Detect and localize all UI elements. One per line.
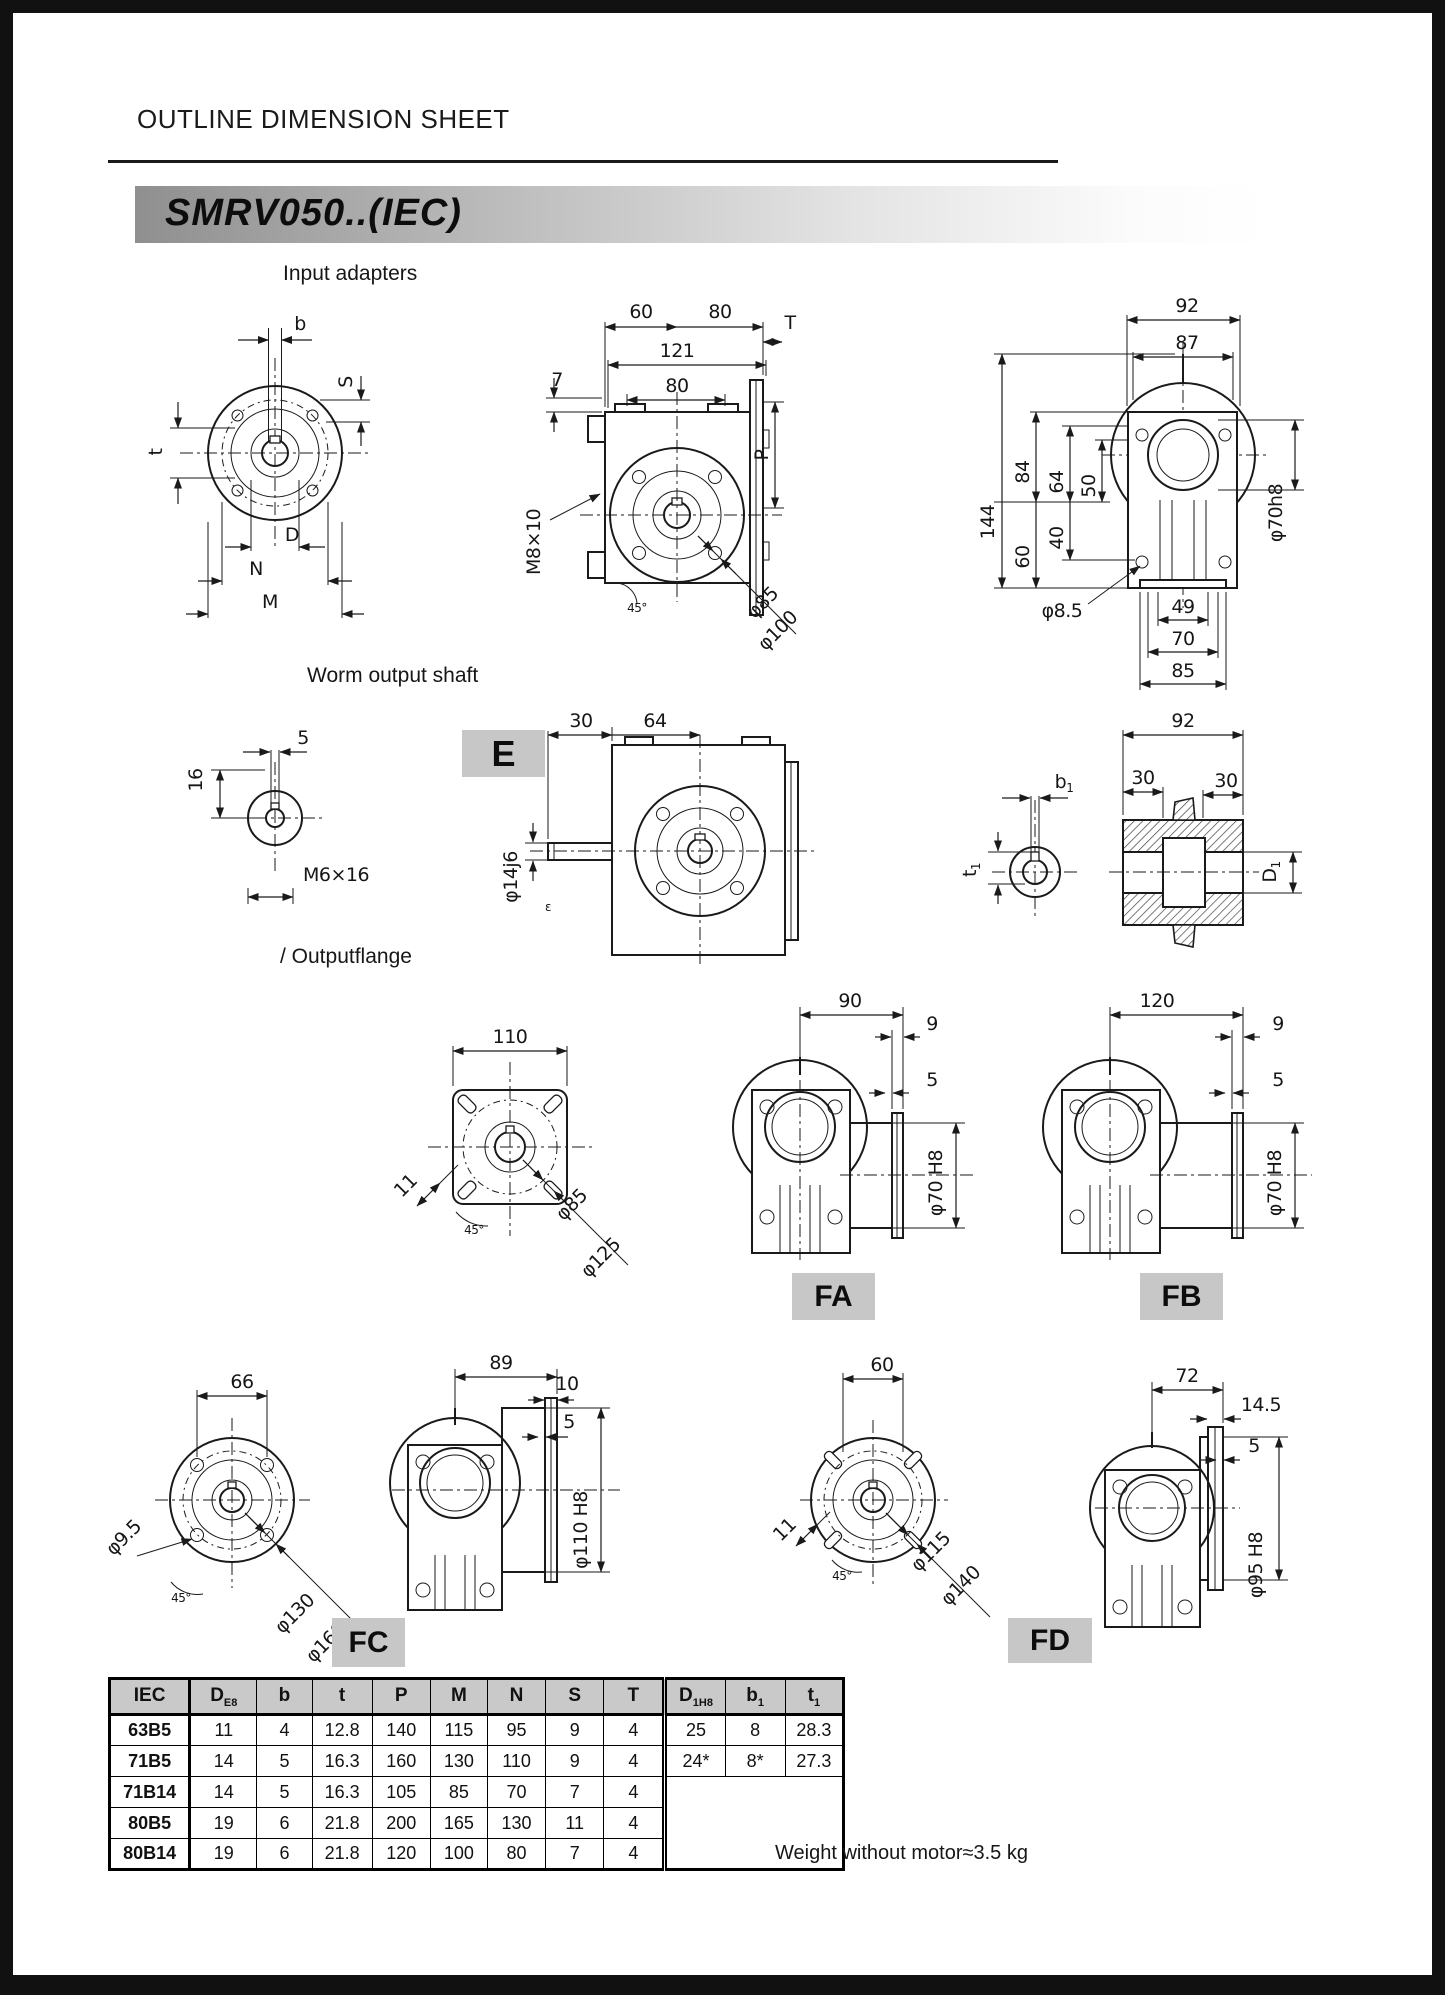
dim-label-50: 50 <box>1078 474 1100 497</box>
table-row: 71B14 14 5 16.3 105 85 70 7 4 <box>110 1777 844 1808</box>
dim-label-5: 5 <box>297 727 309 749</box>
cell: 80B14 <box>110 1839 190 1870</box>
cell: 9 <box>546 1715 604 1746</box>
dim-label-n: N <box>249 558 263 580</box>
dim-label-dia9-5: φ9.5 <box>102 1516 146 1560</box>
dim-label-eps: ε <box>545 900 551 914</box>
dim-label-dia70h8: φ70h8 <box>1265 484 1287 542</box>
cell: 7 <box>546 1839 604 1870</box>
page-frame-left <box>0 0 13 1995</box>
cell: 21.8 <box>312 1839 372 1870</box>
drawing-adapter-face: b S t D N M <box>140 250 390 625</box>
bore-face-geometry <box>988 796 1078 916</box>
cell: 4 <box>604 1839 665 1870</box>
drawing-hub-section: 92 30 30 D1 <box>1095 690 1325 945</box>
table-row: 63B5 11 4 12.8 140 115 95 9 4 25 8 28.3 <box>110 1715 844 1746</box>
cell: 120 <box>372 1839 430 1870</box>
fc-face-geometry <box>137 1390 353 1621</box>
dim-label-30: 30 <box>569 710 592 732</box>
dim-label-49: 49 <box>1171 596 1194 618</box>
cell: 25 <box>665 1715 725 1746</box>
dim-label-60: 60 <box>870 1354 893 1376</box>
dim-label-5: 5 <box>563 1411 575 1433</box>
dim-label-30r: 30 <box>1214 770 1237 792</box>
dim-label-11: 11 <box>390 1170 422 1202</box>
cell: 140 <box>372 1715 430 1746</box>
dim-label-10: 10 <box>555 1373 578 1395</box>
dim-label-90: 90 <box>838 990 861 1012</box>
cell: 9 <box>546 1746 604 1777</box>
cell: 6 <box>257 1808 312 1839</box>
cell: 4 <box>257 1715 312 1746</box>
title-underline <box>108 160 1058 163</box>
dim-label-87: 87 <box>1175 332 1198 354</box>
cell: 11 <box>546 1808 604 1839</box>
shaft-side-geometry <box>525 727 817 965</box>
drawing-adapter-back: 92 87 144 84 64 50 40 60 φ70h8 φ8.5 49 7… <box>950 270 1350 700</box>
cell: 7 <box>546 1777 604 1808</box>
dim-label-dia14j6: φ14j6 <box>500 851 522 903</box>
col-header-b: b <box>257 1679 312 1715</box>
dim-label-dia130: φ130 <box>270 1589 319 1638</box>
dim-label-16: 16 <box>185 768 207 791</box>
cell: 21.8 <box>312 1808 372 1839</box>
col-header-d-e8: DE8 <box>190 1679 257 1715</box>
page-frame-bottom <box>0 1975 1445 1995</box>
cell: 85 <box>430 1777 487 1808</box>
dim-label-dia110h8: φ110 H8 <box>570 1491 592 1569</box>
dim-label-80b: 80 <box>665 375 688 397</box>
dim-label-92: 92 <box>1175 295 1198 317</box>
dim-label-45deg: 45° <box>464 1223 484 1237</box>
cell: 27.3 <box>785 1746 843 1777</box>
dim-label-14-5: 14.5 <box>1241 1394 1281 1416</box>
col-header-t: t <box>312 1679 372 1715</box>
cell: 105 <box>372 1777 430 1808</box>
col-header-s: S <box>546 1679 604 1715</box>
col-header-p: P <box>372 1679 430 1715</box>
cell: 12.8 <box>312 1715 372 1746</box>
cell: 130 <box>430 1746 487 1777</box>
col-header-t2: T <box>604 1679 665 1715</box>
dim-label-m: M <box>262 591 278 613</box>
dim-label-92: 92 <box>1171 710 1194 732</box>
dimension-table: IEC DE8 b t P M N S T D1H8 b1 t1 63B5 11… <box>108 1677 845 1871</box>
cell: 200 <box>372 1808 430 1839</box>
cell: 4 <box>604 1808 665 1839</box>
model-banner: SMRV050..(IEC) <box>135 186 1265 243</box>
dim-label-144: 144 <box>977 504 999 539</box>
col-header-iec: IEC <box>110 1679 190 1715</box>
cell: 110 <box>487 1746 545 1777</box>
drawing-shaft-face: 5 16 M6×16 <box>175 700 405 915</box>
cell: 16.3 <box>312 1746 372 1777</box>
cell: 28.3 <box>785 1715 843 1746</box>
cell: 100 <box>430 1839 487 1870</box>
cell: 80 <box>487 1839 545 1870</box>
fa-geometry <box>733 1007 973 1260</box>
cell: 24* <box>665 1746 725 1777</box>
cell: 8 <box>725 1715 785 1746</box>
dim-label-45deg: 45° <box>171 1591 191 1605</box>
col-header-b1: b1 <box>725 1679 785 1715</box>
cell: 6 <box>257 1839 312 1870</box>
col-header-m: M <box>430 1679 487 1715</box>
hub-section-geometry <box>1109 730 1302 947</box>
dim-label-45deg: 45° <box>627 601 647 615</box>
badge-fb: FB <box>1140 1273 1223 1320</box>
cell: 70 <box>487 1777 545 1808</box>
cell: 130 <box>487 1808 545 1839</box>
dim-label-80: 80 <box>708 301 731 323</box>
dim-label-dia8-5: φ8.5 <box>1042 600 1083 622</box>
dim-label-d: D <box>285 524 299 546</box>
dim-label-64: 64 <box>1046 470 1068 494</box>
cell: 8* <box>725 1746 785 1777</box>
col-header-n: N <box>487 1679 545 1715</box>
dim-label-121: 121 <box>660 340 695 362</box>
cell: 19 <box>190 1839 257 1870</box>
dim-label-dia70h8: φ70 H8 <box>925 1150 947 1216</box>
page-title: OUTLINE DIMENSION SHEET <box>137 104 510 135</box>
dim-label-70: 70 <box>1171 628 1194 650</box>
cell: 4 <box>604 1746 665 1777</box>
drawing-fc: 89 10 5 φ110 H8 <box>380 1340 635 1670</box>
dim-label-72: 72 <box>1175 1365 1198 1387</box>
dim-label-t1: t1 <box>959 863 983 877</box>
dim-label-120: 120 <box>1140 990 1175 1012</box>
dim-label-30l: 30 <box>1131 767 1154 789</box>
dim-label-D1: D1 <box>1259 861 1283 882</box>
dim-label-9: 9 <box>1272 1013 1284 1035</box>
page-frame-top <box>0 0 1445 13</box>
cell: 11 <box>190 1715 257 1746</box>
cell: 63B5 <box>110 1715 190 1746</box>
cell: 80B5 <box>110 1808 190 1839</box>
cell: 160 <box>372 1746 430 1777</box>
outline-dimension-sheet-page: { "page": { "title": "OUTLINE DIMENSION … <box>0 0 1445 1995</box>
cell: 4 <box>604 1715 665 1746</box>
col-header-t1: t1 <box>785 1679 843 1715</box>
table-row: 71B5 14 5 16.3 160 130 110 9 4 24* 8* 27… <box>110 1746 844 1777</box>
drawing-fb: 120 9 5 φ70 H8 <box>1040 985 1325 1285</box>
fc-geometry <box>390 1369 620 1610</box>
col-header-d1h8: D1H8 <box>665 1679 725 1715</box>
dim-label-m8x10: M8×10 <box>523 509 545 575</box>
cell: 14 <box>190 1746 257 1777</box>
drawing-adapter-side: 60 80 T 121 80 7 M8×10 P φ85 φ100 45° <box>430 280 825 680</box>
cell: 14 <box>190 1777 257 1808</box>
cell: 16.3 <box>312 1777 372 1808</box>
cell: 71B14 <box>110 1777 190 1808</box>
flange110-geometry <box>417 1046 628 1265</box>
badge-fa: FA <box>792 1273 875 1320</box>
cell: 5 <box>257 1746 312 1777</box>
dim-label-5: 5 <box>1272 1069 1284 1091</box>
drawing-fa: 90 9 5 φ70 H8 <box>715 985 990 1285</box>
dim-label-b1: b1 <box>1055 771 1074 795</box>
cell: 71B5 <box>110 1746 190 1777</box>
dim-label-60: 60 <box>629 301 652 323</box>
badge-fd: FD <box>1008 1618 1092 1663</box>
weight-note: Weight without motor≈3.5 kg <box>775 1842 1028 1865</box>
dim-label-40: 40 <box>1046 526 1068 549</box>
drawing-fd: 72 14.5 5 φ95 H8 <box>1090 1340 1350 1640</box>
fb-geometry <box>1043 1007 1312 1260</box>
dim-label-45deg: 45° <box>832 1569 852 1583</box>
dim-label-89: 89 <box>489 1352 512 1374</box>
dim-label-s: S <box>335 376 357 388</box>
adapter-side-geometry <box>546 322 796 634</box>
page-frame-right <box>1432 0 1445 1995</box>
dim-label-t: t <box>145 448 167 455</box>
section-output-flange: / Outputflange <box>280 945 412 969</box>
dim-label-66: 66 <box>230 1371 253 1393</box>
dim-label-T: T <box>783 312 796 334</box>
dim-label-84: 84 <box>1012 460 1034 484</box>
dim-label-5: 5 <box>926 1069 938 1091</box>
cell: 165 <box>430 1808 487 1839</box>
dim-label-dia70h8: φ70 H8 <box>1264 1150 1286 1216</box>
drawing-shaft-side: 30 64 φ14j6 ε <box>495 695 830 985</box>
dim-label-110: 110 <box>493 1026 528 1048</box>
dim-label-64: 64 <box>643 710 667 732</box>
cell: 5 <box>257 1777 312 1808</box>
dim-label-9: 9 <box>926 1013 938 1035</box>
drawing-flange110-face: 110 11 45° φ85 φ125 <box>360 1010 680 1300</box>
badge-fc: FC <box>332 1618 405 1667</box>
adapter-face-geometry <box>170 328 370 618</box>
table-header-row: IEC DE8 b t P M N S T D1H8 b1 t1 <box>110 1679 844 1715</box>
cell: 115 <box>430 1715 487 1746</box>
dim-label-dia95h8: φ95 H8 <box>1245 1532 1267 1598</box>
dim-label-m6x16: M6×16 <box>303 864 369 886</box>
dim-label-P: P <box>751 449 773 460</box>
dim-label-dia125: φ125 <box>576 1233 625 1282</box>
cell: 95 <box>487 1715 545 1746</box>
dim-label-b: b <box>294 313 306 335</box>
adapter-back-geometry <box>994 315 1304 690</box>
dim-label-11: 11 <box>769 1514 801 1546</box>
dim-label-60b: 60 <box>1012 545 1034 568</box>
cell: 19 <box>190 1808 257 1839</box>
dim-label-85: 85 <box>1171 660 1194 682</box>
dim-label-dia140: φ140 <box>936 1561 985 1610</box>
dim-label-7: 7 <box>551 369 563 391</box>
dim-label-5: 5 <box>1248 1435 1260 1457</box>
model-banner-label: SMRV050..(IEC) <box>165 192 462 235</box>
cell: 4 <box>604 1777 665 1808</box>
